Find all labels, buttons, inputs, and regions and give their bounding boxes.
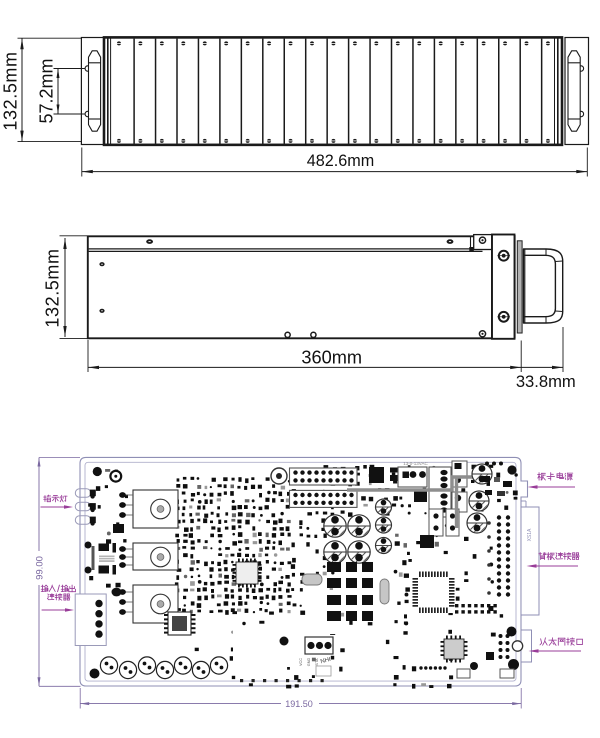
svg-text:99.00: 99.00 xyxy=(34,556,45,580)
svg-text:57.2mm: 57.2mm xyxy=(37,58,57,123)
svg-text:13-0-13VAC: 13-0-13VAC xyxy=(403,461,428,466)
svg-text:360mm: 360mm xyxy=(301,347,362,367)
svg-text:STA: STA xyxy=(315,658,319,666)
svg-text:132.5mm: 132.5mm xyxy=(1,51,21,130)
svg-text:XS1A: XS1A xyxy=(527,528,533,541)
svg-text:132.5mm: 132.5mm xyxy=(43,248,63,327)
svg-text:VCC: VCC xyxy=(299,658,303,666)
svg-text:482.6mm: 482.6mm xyxy=(307,152,374,170)
svg-text:33.8mm: 33.8mm xyxy=(516,372,576,391)
svg-text:GND: GND xyxy=(307,658,311,667)
svg-text:191.50: 191.50 xyxy=(285,699,313,709)
